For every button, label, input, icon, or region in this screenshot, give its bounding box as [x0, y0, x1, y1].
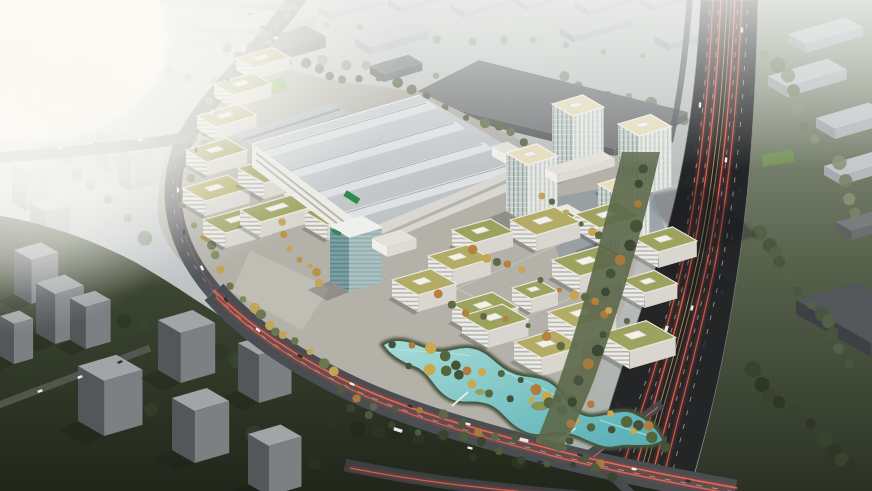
stream-islet — [475, 389, 485, 395]
campus-aerial-rendering — [0, 0, 872, 491]
architectural-rendering — [0, 0, 872, 491]
